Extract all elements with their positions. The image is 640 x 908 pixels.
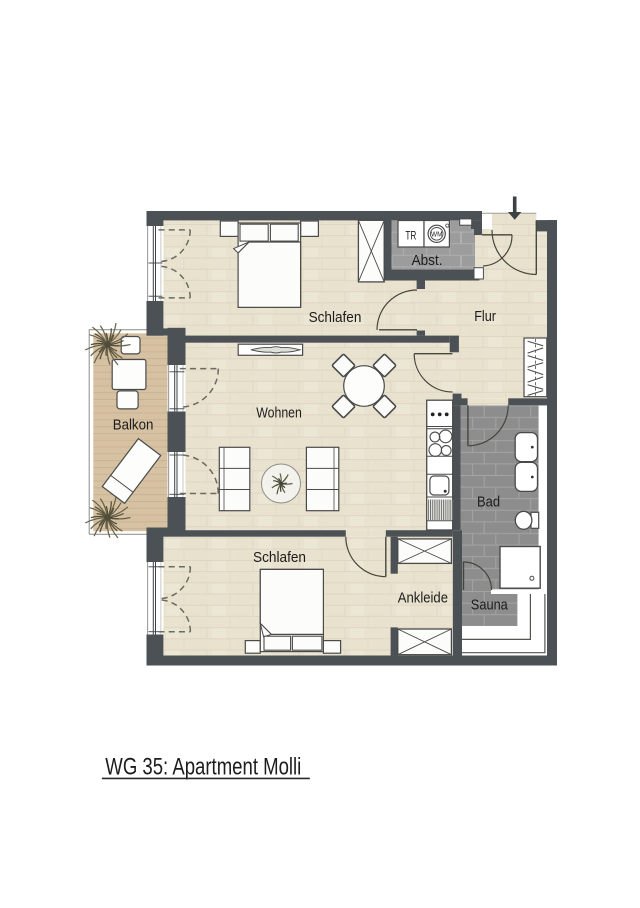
svg-text:Flur: Flur bbox=[474, 308, 496, 325]
svg-text:Balkon: Balkon bbox=[113, 417, 154, 434]
svg-text:Wohnen: Wohnen bbox=[256, 405, 302, 422]
svg-text:TR: TR bbox=[405, 228, 416, 242]
svg-text:Schlafen: Schlafen bbox=[309, 309, 362, 326]
svg-text:WM: WM bbox=[431, 230, 443, 239]
svg-text:Sauna: Sauna bbox=[471, 597, 509, 614]
svg-text:Bad: Bad bbox=[477, 493, 500, 510]
svg-text:Ankleide: Ankleide bbox=[398, 589, 448, 606]
svg-text:Schlafen: Schlafen bbox=[253, 549, 306, 566]
svg-text:Abst.: Abst. bbox=[412, 252, 443, 269]
svg-text:WG 35: Apartment Molli: WG 35: Apartment Molli bbox=[105, 754, 301, 781]
